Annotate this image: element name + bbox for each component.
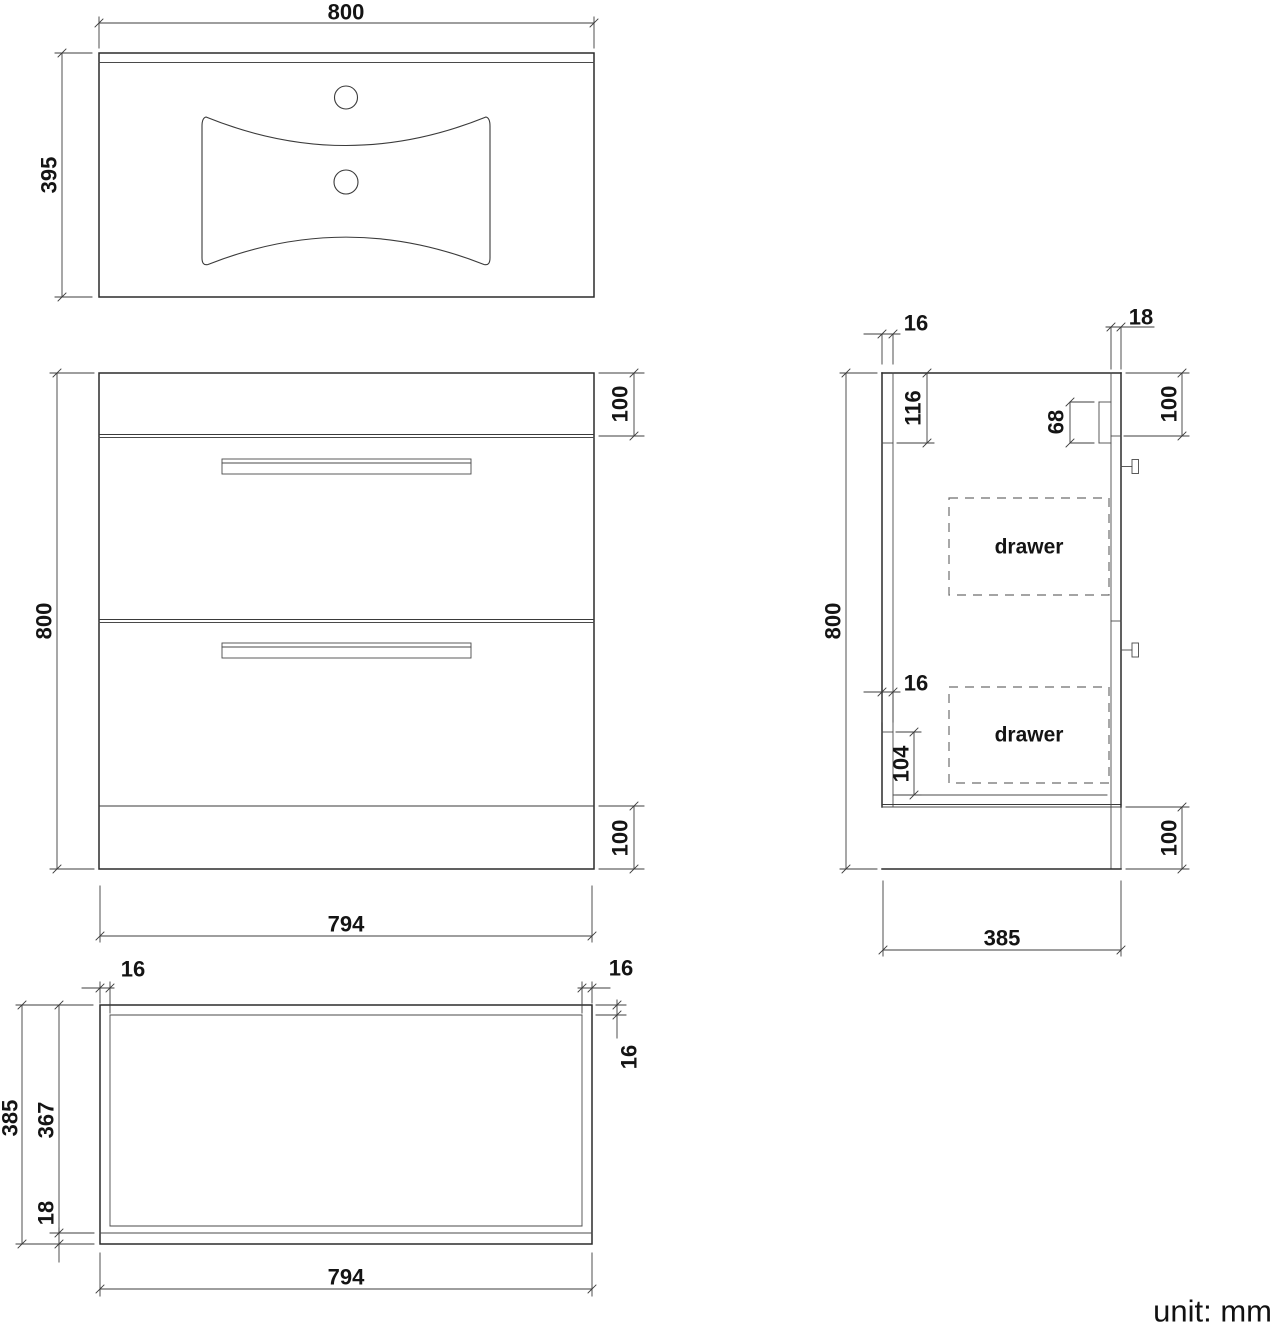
drawer-label-top: drawer [995, 536, 1064, 559]
dim-label-18-side: 18 [1129, 305, 1153, 330]
dim-label-395: 395 [37, 157, 62, 194]
dim-label-16-side-mid: 16 [904, 671, 928, 696]
dim-label-16-bottom-right: 16 [609, 956, 633, 981]
dim-label-16-side-top: 16 [904, 311, 928, 336]
dim-label-116: 116 [901, 390, 926, 426]
side-handle-bottom [1121, 643, 1139, 657]
cabinet-bottom-view: 16 16 16 385 [0, 956, 642, 1297]
cabinet-side-view: drawer drawer 16 18 116 [821, 305, 1190, 957]
vanity-unit-dimension-drawing: 800 395 [0, 0, 1286, 1339]
side-drawer-rail [1099, 402, 1111, 443]
dim-side-depth-385: 385 [879, 881, 1125, 956]
front-outline [99, 373, 594, 869]
dim-label-367: 367 [34, 1102, 59, 1139]
drawer-handle-bottom [222, 643, 471, 658]
dim-label-16-bottom-back: 16 [617, 1045, 642, 1069]
drain-hole [334, 170, 358, 194]
dim-bottom-front-18: 18 [34, 1201, 95, 1262]
dim-label-800-top: 800 [328, 0, 365, 25]
units-caption: unit: mm [1153, 1294, 1272, 1329]
dim-side-front-18: 18 [1106, 305, 1154, 370]
drawer-handle-top [222, 459, 471, 474]
faucet-hole [335, 86, 358, 109]
basin-bowl-outline [202, 117, 490, 265]
dim-side-top-band-100: 100 [1124, 369, 1189, 440]
dim-label-100-front-top: 100 [608, 386, 633, 423]
technical-drawing-page: 800 395 [0, 0, 1286, 1339]
countertop-outline [99, 53, 594, 297]
dim-label-794-bottom: 794 [328, 1265, 365, 1290]
side-handle-top [1121, 460, 1139, 474]
dim-label-385-side: 385 [984, 926, 1021, 951]
dim-side-mid-16: 16 [864, 671, 928, 723]
dim-label-104: 104 [889, 745, 914, 782]
dim-side-back-rail-116: 116 [897, 369, 934, 447]
dim-front-width-794: 794 [96, 886, 596, 942]
cabinet-front-view: 800 100 100 794 [32, 369, 645, 942]
dim-side-plinth-100: 100 [1126, 803, 1189, 873]
dim-label-100-side-top: 100 [1157, 386, 1182, 423]
dim-label-385-bottom: 385 [0, 1100, 23, 1137]
dim-label-100-side-bottom: 100 [1157, 820, 1182, 857]
dim-side-back-16: 16 [864, 311, 928, 365]
drawer-label-bottom: drawer [995, 724, 1064, 747]
dim-label-800-front: 800 [32, 603, 57, 640]
dim-label-100-front-bottom: 100 [608, 820, 633, 857]
dim-bottom-width-794: 794 [96, 1253, 596, 1296]
dim-front-height-800: 800 [32, 369, 95, 873]
dim-label-68: 68 [1044, 410, 1069, 434]
dim-top-depth-395: 395 [37, 49, 93, 301]
dim-label-794-front: 794 [328, 912, 365, 937]
dim-side-height-800: 800 [821, 369, 878, 873]
bottom-outer-outline [100, 1005, 592, 1244]
dim-label-18-bottom: 18 [34, 1201, 59, 1225]
dim-bottom-back-16: 16 [596, 1000, 642, 1069]
dim-label-800-side: 800 [821, 603, 846, 640]
dim-label-16-bottom-left: 16 [121, 957, 145, 982]
dim-front-top-band-100: 100 [599, 369, 644, 440]
basin-top-view: 800 395 [37, 0, 599, 301]
dim-side-rail-68: 68 [1044, 398, 1095, 447]
dim-front-bottom-band-100: 100 [599, 802, 644, 873]
dim-top-width-800: 800 [95, 0, 598, 48]
